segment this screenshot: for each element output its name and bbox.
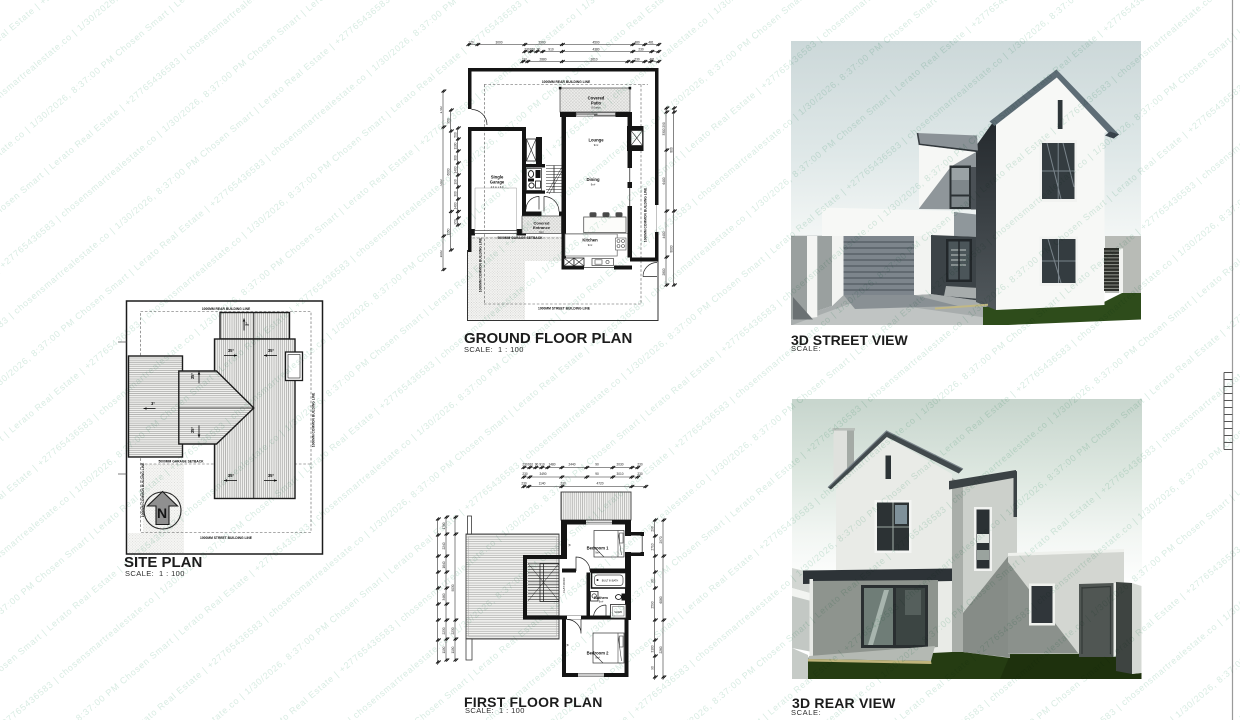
svg-text:910: 910	[528, 462, 534, 466]
svg-text:W: W	[566, 643, 570, 646]
svg-text:35°: 35°	[268, 473, 275, 478]
svg-text:1100: 1100	[454, 142, 458, 149]
svg-text:1700: 1700	[440, 106, 443, 113]
svg-text:35°: 35°	[190, 427, 195, 434]
svg-text:1150: 1150	[447, 228, 451, 235]
svg-text:5000MM GARAGE SETBACK: 5000MM GARAGE SETBACK	[158, 460, 204, 464]
svg-text:90: 90	[537, 47, 541, 51]
svg-text:2260: 2260	[659, 646, 663, 653]
svg-text:910: 910	[530, 47, 536, 51]
svg-text:950: 950	[454, 219, 458, 225]
svg-text:9m²: 9m²	[588, 243, 593, 247]
svg-text:1780: 1780	[442, 522, 446, 529]
svg-text:1000: 1000	[440, 250, 443, 257]
svg-text:2230: 2230	[451, 627, 455, 634]
svg-text:3°: 3°	[151, 401, 155, 406]
svg-text:9m²: 9m²	[595, 551, 600, 555]
svg-text:Bathrm: Bathrm	[594, 595, 608, 600]
svg-text:3610: 3610	[590, 57, 597, 61]
svg-text:9m²: 9m²	[539, 230, 544, 234]
svg-text:1140: 1140	[539, 481, 546, 485]
svg-text:3°: 3°	[245, 322, 250, 326]
svg-text:1190: 1190	[451, 646, 455, 653]
svg-text:8.0msm: 8.0msm	[591, 106, 600, 110]
svg-text:2800: 2800	[662, 268, 666, 275]
svg-text:9m²: 9m²	[591, 182, 596, 186]
svg-text:230: 230	[637, 472, 643, 476]
svg-text:Patio: Patio	[591, 101, 602, 106]
svg-text:4380: 4380	[592, 47, 599, 51]
svg-text:6400: 6400	[662, 177, 666, 184]
svg-text:2230: 2230	[442, 627, 446, 634]
svg-text:4500: 4500	[592, 40, 599, 44]
svg-text:90: 90	[595, 472, 599, 476]
svg-text:35°: 35°	[190, 373, 195, 380]
svg-text:Garage: Garage	[490, 180, 505, 185]
svg-text:230: 230	[560, 481, 566, 485]
svg-text:3300: 3300	[662, 128, 666, 135]
svg-text:9m²: 9m²	[595, 656, 600, 660]
svg-text:FLAT ROOF: FLAT ROOF	[562, 577, 566, 593]
svg-text:110: 110	[522, 57, 527, 61]
svg-text:9m²: 9m²	[599, 599, 604, 603]
svg-text:8000: 8000	[670, 245, 674, 252]
svg-text:300: 300	[454, 191, 458, 197]
svg-text:1190: 1190	[442, 646, 446, 653]
svg-text:1640: 1640	[442, 561, 446, 568]
svg-text:W: W	[568, 543, 572, 546]
svg-text:1000MM COMMON BUILDING LINE: 1000MM COMMON BUILDING LINE	[312, 392, 316, 447]
svg-text:7210: 7210	[440, 179, 443, 186]
svg-text:5000MM GARAGE SETBACK: 5000MM GARAGE SETBACK	[497, 236, 543, 240]
svg-text:Dining: Dining	[586, 177, 599, 182]
svg-text:1000MM REAR BUILDING LINE: 1000MM REAR BUILDING LINE	[542, 80, 591, 84]
svg-text:230: 230	[634, 57, 640, 61]
svg-text:4720: 4720	[596, 481, 603, 485]
svg-text:1000MM STREET BUILDING LINE: 1000MM STREET BUILDING LINE	[200, 536, 253, 540]
svg-text:1400: 1400	[454, 166, 458, 173]
svg-text:90: 90	[595, 462, 599, 466]
svg-text:35°: 35°	[228, 473, 235, 478]
svg-text:950: 950	[447, 118, 451, 124]
svg-text:1000MM REAR BUILDING LINE: 1000MM REAR BUILDING LINE	[202, 307, 251, 311]
svg-text:9m²: 9m²	[594, 143, 599, 147]
svg-text:90: 90	[651, 579, 655, 583]
svg-text:190: 190	[454, 179, 458, 185]
svg-text:170: 170	[468, 40, 474, 44]
svg-text:4.0 m x 6.0: 4.0 m x 6.0	[491, 185, 504, 189]
svg-text:1000MM COMMON BUILDING LINE: 1000MM COMMON BUILDING LINE	[479, 237, 483, 292]
svg-text:2900: 2900	[538, 40, 545, 44]
svg-text:230: 230	[522, 472, 528, 476]
svg-text:230: 230	[521, 481, 527, 485]
svg-text:90: 90	[651, 666, 655, 670]
svg-text:Kitchen: Kitchen	[582, 238, 598, 243]
svg-text:SHWR: SHWR	[614, 610, 622, 614]
svg-text:230: 230	[638, 47, 644, 51]
svg-text:9030: 9030	[451, 584, 455, 591]
svg-text:2970: 2970	[659, 536, 663, 543]
svg-text:35°: 35°	[268, 348, 275, 353]
svg-text:480: 480	[634, 40, 640, 44]
svg-text:90: 90	[535, 462, 539, 466]
svg-text:Bedroom 1: Bedroom 1	[587, 546, 610, 551]
svg-text:2240: 2240	[442, 542, 446, 549]
svg-text:2880: 2880	[539, 57, 546, 61]
svg-text:Lounge: Lounge	[588, 138, 604, 143]
svg-text:2710: 2710	[651, 543, 655, 550]
svg-text:1000MM COMMON BUILDING LINE: 1000MM COMMON BUILDING LINE	[644, 187, 648, 242]
svg-text:3100: 3100	[651, 645, 655, 652]
svg-text:290: 290	[651, 526, 655, 532]
svg-text:BUILT IN BATH: BUILT IN BATH	[602, 580, 619, 583]
svg-text:500: 500	[454, 132, 458, 138]
svg-text:1400: 1400	[454, 202, 458, 209]
svg-text:Bedroom 2: Bedroom 2	[587, 651, 610, 656]
svg-text:481: 481	[649, 57, 655, 61]
svg-text:1000MM STREET BUILDING LINE: 1000MM STREET BUILDING LINE	[538, 307, 591, 311]
svg-text:N: N	[157, 505, 167, 521]
svg-text:2590: 2590	[651, 601, 655, 608]
svg-text:290: 290	[662, 122, 666, 128]
svg-text:300: 300	[454, 155, 458, 161]
svg-text:800: 800	[670, 147, 674, 153]
svg-text:6000: 6000	[447, 168, 451, 175]
svg-text:3490: 3490	[539, 472, 546, 476]
svg-text:910: 910	[539, 462, 545, 466]
svg-text:2440: 2440	[568, 462, 575, 466]
svg-text:6060: 6060	[659, 596, 663, 603]
svg-text:3000: 3000	[495, 40, 502, 44]
svg-text:Entrance: Entrance	[533, 225, 551, 230]
svg-text:1480: 1480	[548, 462, 555, 466]
svg-text:3460: 3460	[442, 593, 446, 600]
svg-text:35°: 35°	[228, 348, 235, 353]
svg-text:3010: 3010	[616, 472, 623, 476]
svg-text:4400: 4400	[662, 231, 666, 238]
svg-text:2030: 2030	[616, 462, 623, 466]
svg-text:910: 910	[548, 47, 554, 51]
svg-text:230: 230	[637, 462, 643, 466]
svg-text:481: 481	[648, 40, 654, 44]
